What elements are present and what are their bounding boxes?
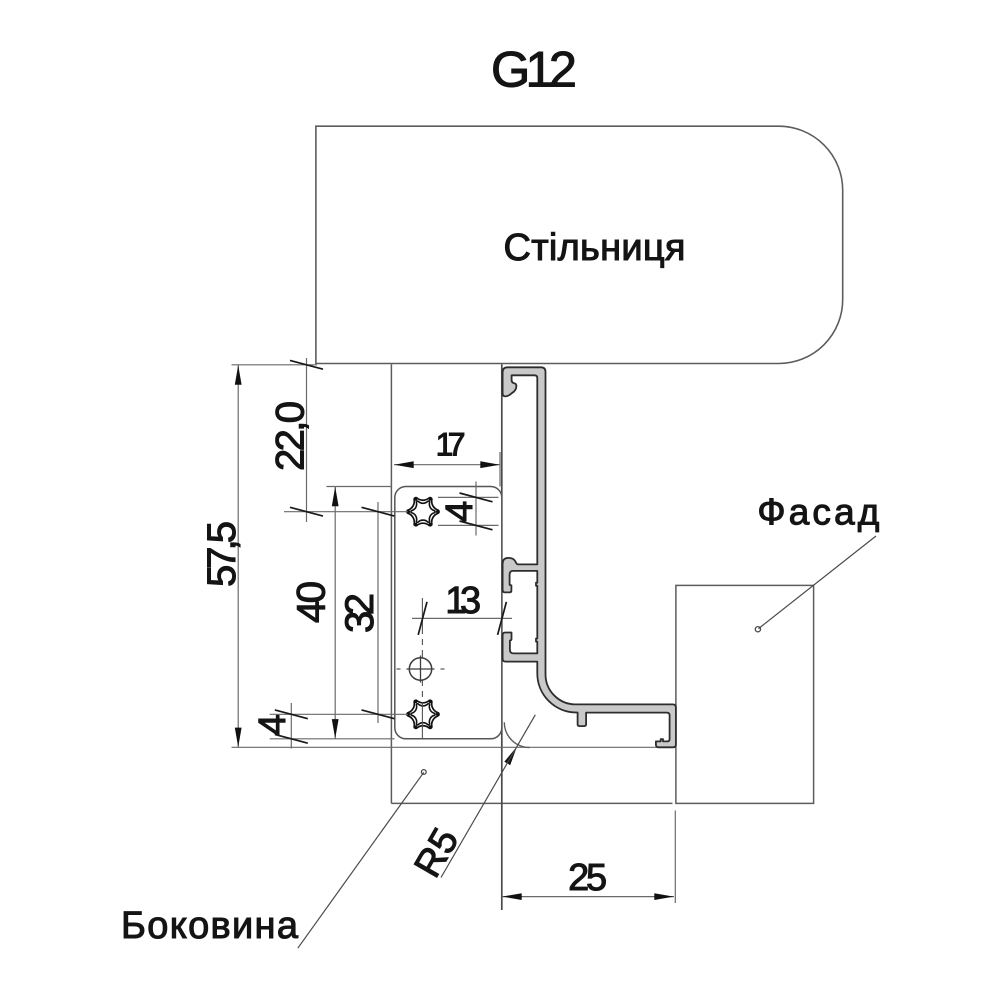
svg-text:32: 32 xyxy=(338,593,382,633)
svg-text:17: 17 xyxy=(436,427,466,463)
svg-text:57,5: 57,5 xyxy=(200,521,244,587)
svg-text:Стільниця: Стільниця xyxy=(504,227,686,269)
svg-text:40: 40 xyxy=(290,581,334,623)
svg-text:G12: G12 xyxy=(491,40,577,97)
svg-text:R5: R5 xyxy=(407,821,468,884)
svg-text:25: 25 xyxy=(568,857,607,899)
svg-text:Фасад: Фасад xyxy=(757,492,879,533)
svg-text:22,0: 22,0 xyxy=(269,401,313,471)
svg-text:Боковина: Боковина xyxy=(121,905,299,947)
svg-text:4: 4 xyxy=(439,501,481,522)
svg-text:13: 13 xyxy=(445,580,481,622)
svg-text:4: 4 xyxy=(252,714,294,735)
